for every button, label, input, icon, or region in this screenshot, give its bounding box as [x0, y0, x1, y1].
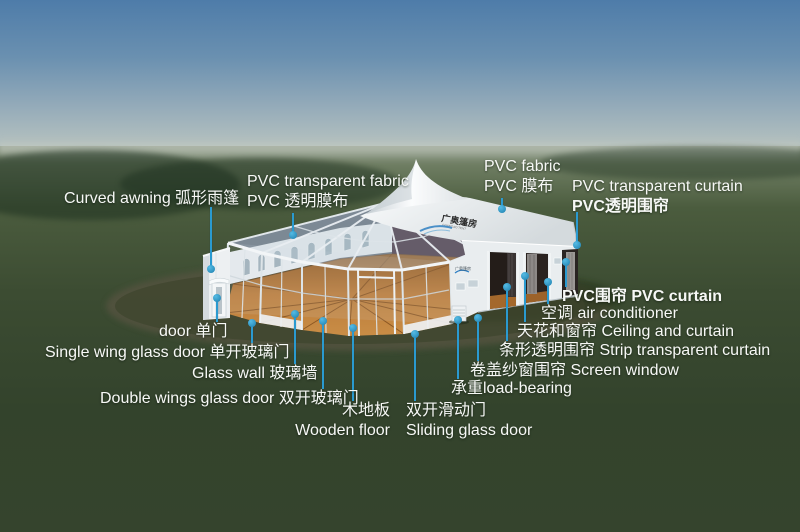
label-text: 天花和窗帘 Ceiling and curtain — [517, 322, 734, 342]
label-text: 双开滑动门 — [406, 401, 532, 421]
leader-line-load-bearing — [457, 323, 459, 379]
label-curved-awning: Curved awning 弧形雨篷 — [64, 189, 239, 209]
label-text: PVC transparent fabric — [247, 172, 409, 192]
leader-line-ceiling-and-curtain — [524, 279, 526, 322]
leader-dot-pvc-transparent-curtain — [573, 241, 581, 249]
label-glass-wall: Glass wall 玻璃墙 — [192, 364, 317, 384]
label-text: 空调 air conditioner — [541, 304, 678, 324]
label-text: PVC fabric — [484, 157, 560, 177]
label-text: door 单门 — [159, 322, 227, 342]
label-single-wing-glass-door: Single wing glass door 单开玻璃门 — [45, 343, 290, 363]
leader-line-single-wing-glass-door — [251, 326, 253, 343]
leader-dot-curved-awning — [207, 265, 215, 273]
label-text: Single wing glass door 单开玻璃门 — [45, 343, 290, 363]
leader-line-screen-window — [477, 321, 479, 361]
tent-illustration: 广奥篷房 GUANGAO TENT — [0, 0, 800, 532]
label-sliding-glass-door: 双开滑动门 Sliding glass door — [406, 401, 532, 440]
label-pvc-fabric: PVC fabric PVC 膜布 — [484, 157, 560, 196]
label-pvc-transparent-fabric: PVC transparent fabric PVC 透明膜布 — [247, 172, 409, 211]
leader-dot-ceiling-and-curtain — [521, 272, 529, 280]
label-text: Glass wall 玻璃墙 — [192, 364, 317, 384]
label-pvc-curtain: PVC围帘 PVC curtain — [562, 287, 722, 307]
label-text: 木地板 — [290, 401, 390, 421]
label-screen-window: 卷盖纱窗围帘 Screen window — [470, 361, 679, 381]
label-text: 卷盖纱窗围帘 Screen window — [470, 361, 679, 381]
label-load-bearing: 承重load-bearing — [451, 379, 572, 399]
label-door: door 单门 — [159, 322, 227, 342]
label-text: 承重load-bearing — [451, 379, 572, 399]
leader-dot-pvc-fabric — [498, 205, 506, 213]
leader-line-pvc-transparent-curtain — [576, 212, 578, 244]
leader-dot-wooden-floor — [349, 324, 357, 332]
leader-line-double-wings-glass-door — [322, 324, 324, 389]
leader-line-curved-awning — [210, 207, 212, 268]
leader-dot-pvc-curtain — [562, 258, 570, 266]
label-air-conditioner: 空调 air conditioner — [541, 304, 678, 324]
label-text: PVC 膜布 — [484, 177, 560, 197]
wall-logo-name: 广奥篷房 — [455, 265, 471, 271]
label-text: PVC transparent curtain — [572, 177, 743, 197]
label-text: PVC 透明膜布 — [247, 192, 409, 212]
label-text: Sliding glass door — [406, 421, 532, 441]
leader-dot-single-wing-glass-door — [248, 319, 256, 327]
label-text: PVC透明围帘 — [572, 197, 743, 217]
label-text: Curved awning 弧形雨篷 — [64, 189, 239, 209]
leader-dot-strip-transparent-curtain — [503, 283, 511, 291]
leader-dot-air-conditioner — [544, 278, 552, 286]
leader-line-pvc-curtain — [565, 265, 567, 287]
leader-dot-load-bearing — [454, 316, 462, 324]
label-text: PVC围帘 PVC curtain — [562, 287, 722, 307]
leader-dot-glass-wall — [291, 310, 299, 318]
leader-dot-sliding-glass-door — [411, 330, 419, 338]
leader-line-glass-wall — [294, 317, 296, 364]
label-text: 条形透明围帘 Strip transparent curtain — [499, 341, 770, 361]
leader-line-door — [216, 299, 218, 322]
leader-dot-pvc-transparent-fabric — [289, 231, 297, 239]
sliding-door-opening — [488, 251, 518, 310]
label-pvc-transparent-curtain: PVC transparent curtain PVC透明围帘 — [572, 177, 743, 216]
label-strip-transparent-curtain: 条形透明围帘 Strip transparent curtain — [499, 341, 770, 361]
leader-dot-double-wings-glass-door — [319, 317, 327, 325]
label-text: Wooden floor — [290, 421, 390, 441]
leader-dot-door — [213, 294, 221, 302]
label-wooden-floor: 木地板 Wooden floor — [290, 401, 390, 440]
leader-line-sliding-glass-door — [414, 337, 416, 401]
leader-line-strip-transparent-curtain — [506, 290, 508, 341]
leader-dot-screen-window — [474, 314, 482, 322]
leader-line-air-conditioner — [547, 285, 549, 304]
annotated-tent-render: 广奥篷房 GUANGAO TENT — [0, 0, 800, 532]
label-ceiling-and-curtain: 天花和窗帘 Ceiling and curtain — [517, 322, 734, 342]
